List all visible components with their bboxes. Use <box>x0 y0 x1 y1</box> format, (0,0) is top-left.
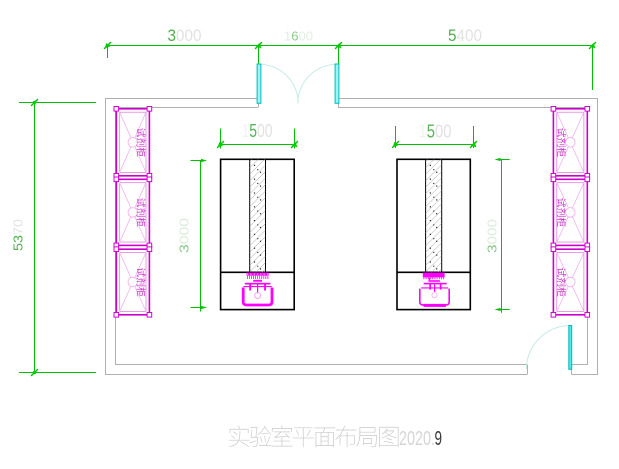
svg-text:1500: 1500 <box>242 121 273 141</box>
svg-text:5370: 5370 <box>10 219 25 251</box>
svg-text:1600: 1600 <box>284 29 313 44</box>
svg-text:3000: 3000 <box>168 27 202 45</box>
svg-text:1500: 1500 <box>419 121 452 141</box>
svg-text:2020.: 2020. <box>399 428 435 450</box>
svg-text:5400: 5400 <box>448 27 482 45</box>
svg-text:3000: 3000 <box>485 219 500 253</box>
svg-text:3000: 3000 <box>176 218 191 253</box>
svg-text:9: 9 <box>435 428 443 450</box>
